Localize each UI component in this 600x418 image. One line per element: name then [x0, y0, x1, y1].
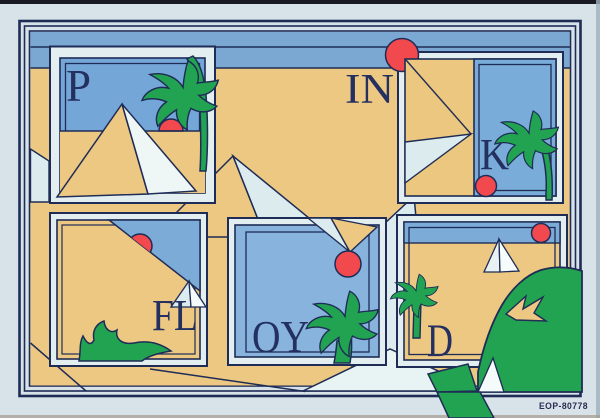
sun-icon [335, 251, 361, 277]
panel-k: K [386, 39, 564, 204]
sun-icon [532, 224, 551, 243]
letter-oy: OY [252, 312, 309, 362]
photo-edge-top [0, 0, 600, 4]
letter-p: P [66, 60, 91, 111]
letter-fl: FL [152, 291, 198, 340]
panel-oy: OY [228, 218, 386, 365]
pink-floyd-desert-artwork: P IN K FL OY [0, 0, 600, 418]
photo-edge-right [596, 0, 600, 418]
panel-p: P [50, 47, 218, 204]
letter-in: IN [345, 67, 394, 113]
panel-fl: FL [50, 213, 207, 366]
catalog-number: EOP-80778 [539, 401, 588, 412]
art-card: P IN K FL OY [0, 0, 600, 418]
letter-d: D [427, 315, 453, 367]
sun-icon [476, 176, 497, 197]
